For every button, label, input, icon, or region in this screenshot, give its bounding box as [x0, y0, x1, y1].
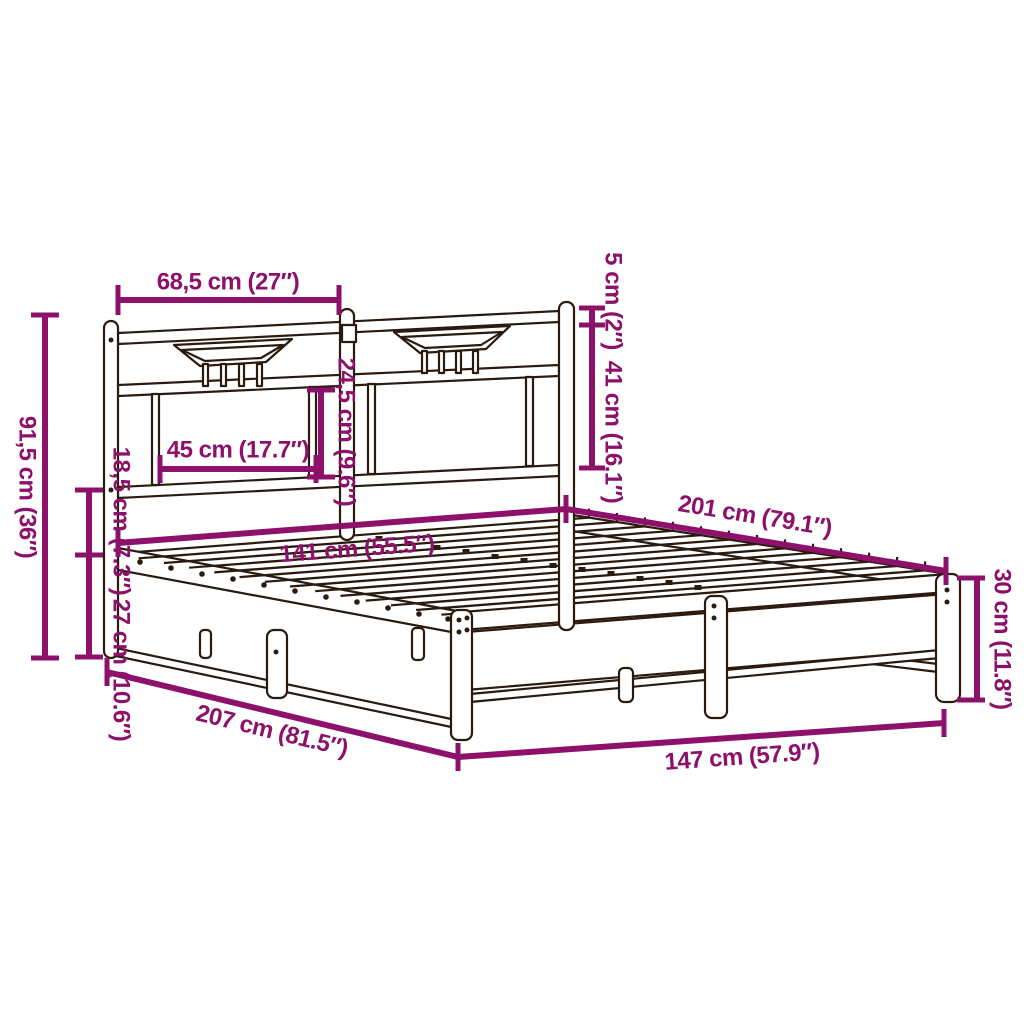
left-mid-leg [267, 630, 287, 698]
dimension-headboard-section-width: 68,5 cm (27″) [118, 269, 339, 316]
bed-frame-dimension-diagram: 68,5 cm (27″) 5 cm (2″) 41 cm (16.1″) 24… [0, 0, 1024, 1024]
dimension-label-inner-width: 141 cm (55.5″) [279, 530, 436, 569]
dimension-label-headboard-panel-height: 24,5 cm (9.6″) [333, 358, 360, 507]
dimension-label-headboard-section-width: 68,5 cm (27″) [157, 269, 299, 296]
left-mid-leg-rivet [274, 650, 279, 655]
foot-right-post [936, 574, 960, 702]
center-post-bracket [342, 325, 356, 342]
left-rail-support-small [200, 630, 211, 658]
foot-small-leg [619, 668, 633, 702]
dimension-foot-frame-height: 30 cm (11.8″) [957, 568, 1016, 709]
diagram-canvas: 68,5 cm (27″) 5 cm (2″) 41 cm (16.1″) 24… [0, 0, 1024, 1024]
headboard-right-trapezoid [394, 326, 510, 353]
dimension-label-foot-frame-height: 30 cm (11.8″) [989, 568, 1016, 709]
dimension-label-post-cap-height: 5 cm (2″) [600, 252, 627, 350]
dimension-label-headboard-panel-width: 45 cm (17.7″) [167, 437, 309, 464]
dimension-label-headboard-lower-gap: 18,5 cm (7.3″) [108, 447, 135, 596]
headboard-right-post [559, 302, 574, 630]
dimension-total-height: 91,5 cm (36″) [14, 315, 60, 658]
dimension-headboard-panel-width: 45 cm (17.7″) [160, 437, 316, 484]
dimension-label-total-height: 91,5 cm (36″) [14, 416, 41, 558]
center-rail-support-leg [412, 628, 424, 660]
dimension-label-headboard-upper-height: 41 cm (16.1″) [600, 361, 627, 503]
foot-center-leg [705, 596, 727, 718]
dimension-outer-width: 147 cm (57.9″) [458, 709, 944, 776]
dimension-headboard-upper-height: 41 cm (16.1″) [579, 325, 627, 503]
dimension-label-platform-height: 27 cm (10.6″) [108, 599, 135, 741]
headboard-left-trapezoid [174, 339, 292, 366]
dimension-post-cap-height: 5 cm (2″) [579, 252, 627, 350]
